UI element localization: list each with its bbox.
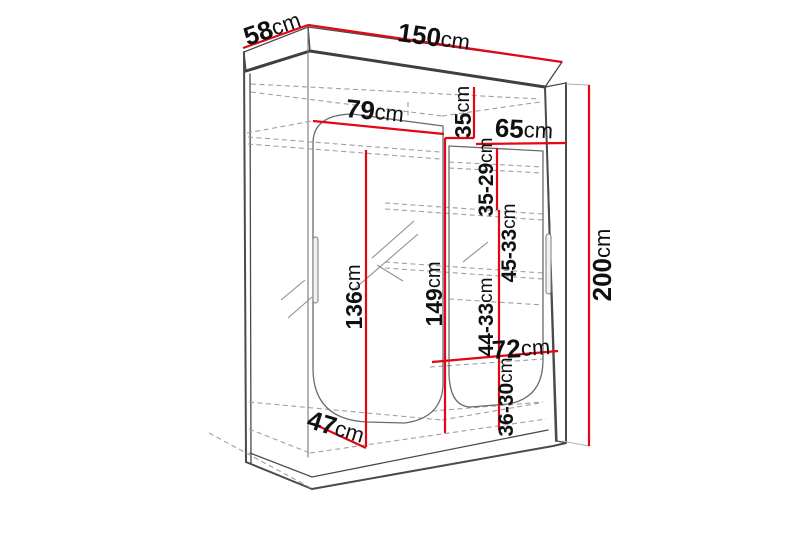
hidden-edge-line: [247, 121, 312, 133]
mirror-reflection-line: [463, 242, 488, 262]
dimension-labels: 58cm 150cm 200cm 79cm 35cm 65cm 35-29cm …: [240, 4, 617, 450]
wardrobe-dimension-diagram: 58cm 150cm 200cm 79cm 35cm 65cm 35-29cm …: [0, 0, 800, 533]
crown-front-edge: [246, 51, 545, 87]
bottom-silhouette: [246, 443, 566, 489]
dim-label-left-door-height: 136cm: [341, 264, 367, 329]
hidden-edge-line: [251, 84, 540, 99]
dim-label-center-section-height: 149cm: [421, 261, 447, 326]
diagram-canvas: 58cm 150cm 200cm 79cm 35cm 65cm 35-29cm …: [0, 0, 800, 533]
hanging-rod-line: [248, 144, 440, 159]
floor-line: [249, 429, 310, 453]
dim-label-right-top-gap: 35cm: [450, 86, 476, 138]
dim-label-depth-top: 58cm: [240, 4, 305, 51]
dim-label-height-right: 200cm: [587, 229, 617, 302]
dim-label-right-gap-2: 45-33cm: [498, 203, 521, 282]
dim-label-inner-depth-bottom: 47cm: [304, 404, 368, 450]
hanging-rod-line: [248, 137, 440, 152]
mirror-reflection-line: [372, 221, 414, 258]
dim-label-right-gap-1: 35-29cm: [475, 137, 498, 216]
left-outer-edge: [244, 52, 246, 462]
shelf-line: [432, 402, 543, 411]
dim-label-right-gap-4: 36-30cm: [495, 357, 518, 436]
dim-label-right-section-width: 65cm: [494, 112, 554, 145]
mirror-reflection-line: [281, 280, 305, 300]
dim-connector: [566, 84, 589, 85]
floor-line: [209, 433, 311, 488]
left-door-handle: [313, 237, 318, 303]
dim-label-left-section-width: 79cm: [344, 93, 405, 129]
mirror-reflection-line: [377, 265, 403, 281]
dim-label-width-top: 150cm: [396, 17, 472, 57]
right-door-handle: [546, 234, 551, 294]
